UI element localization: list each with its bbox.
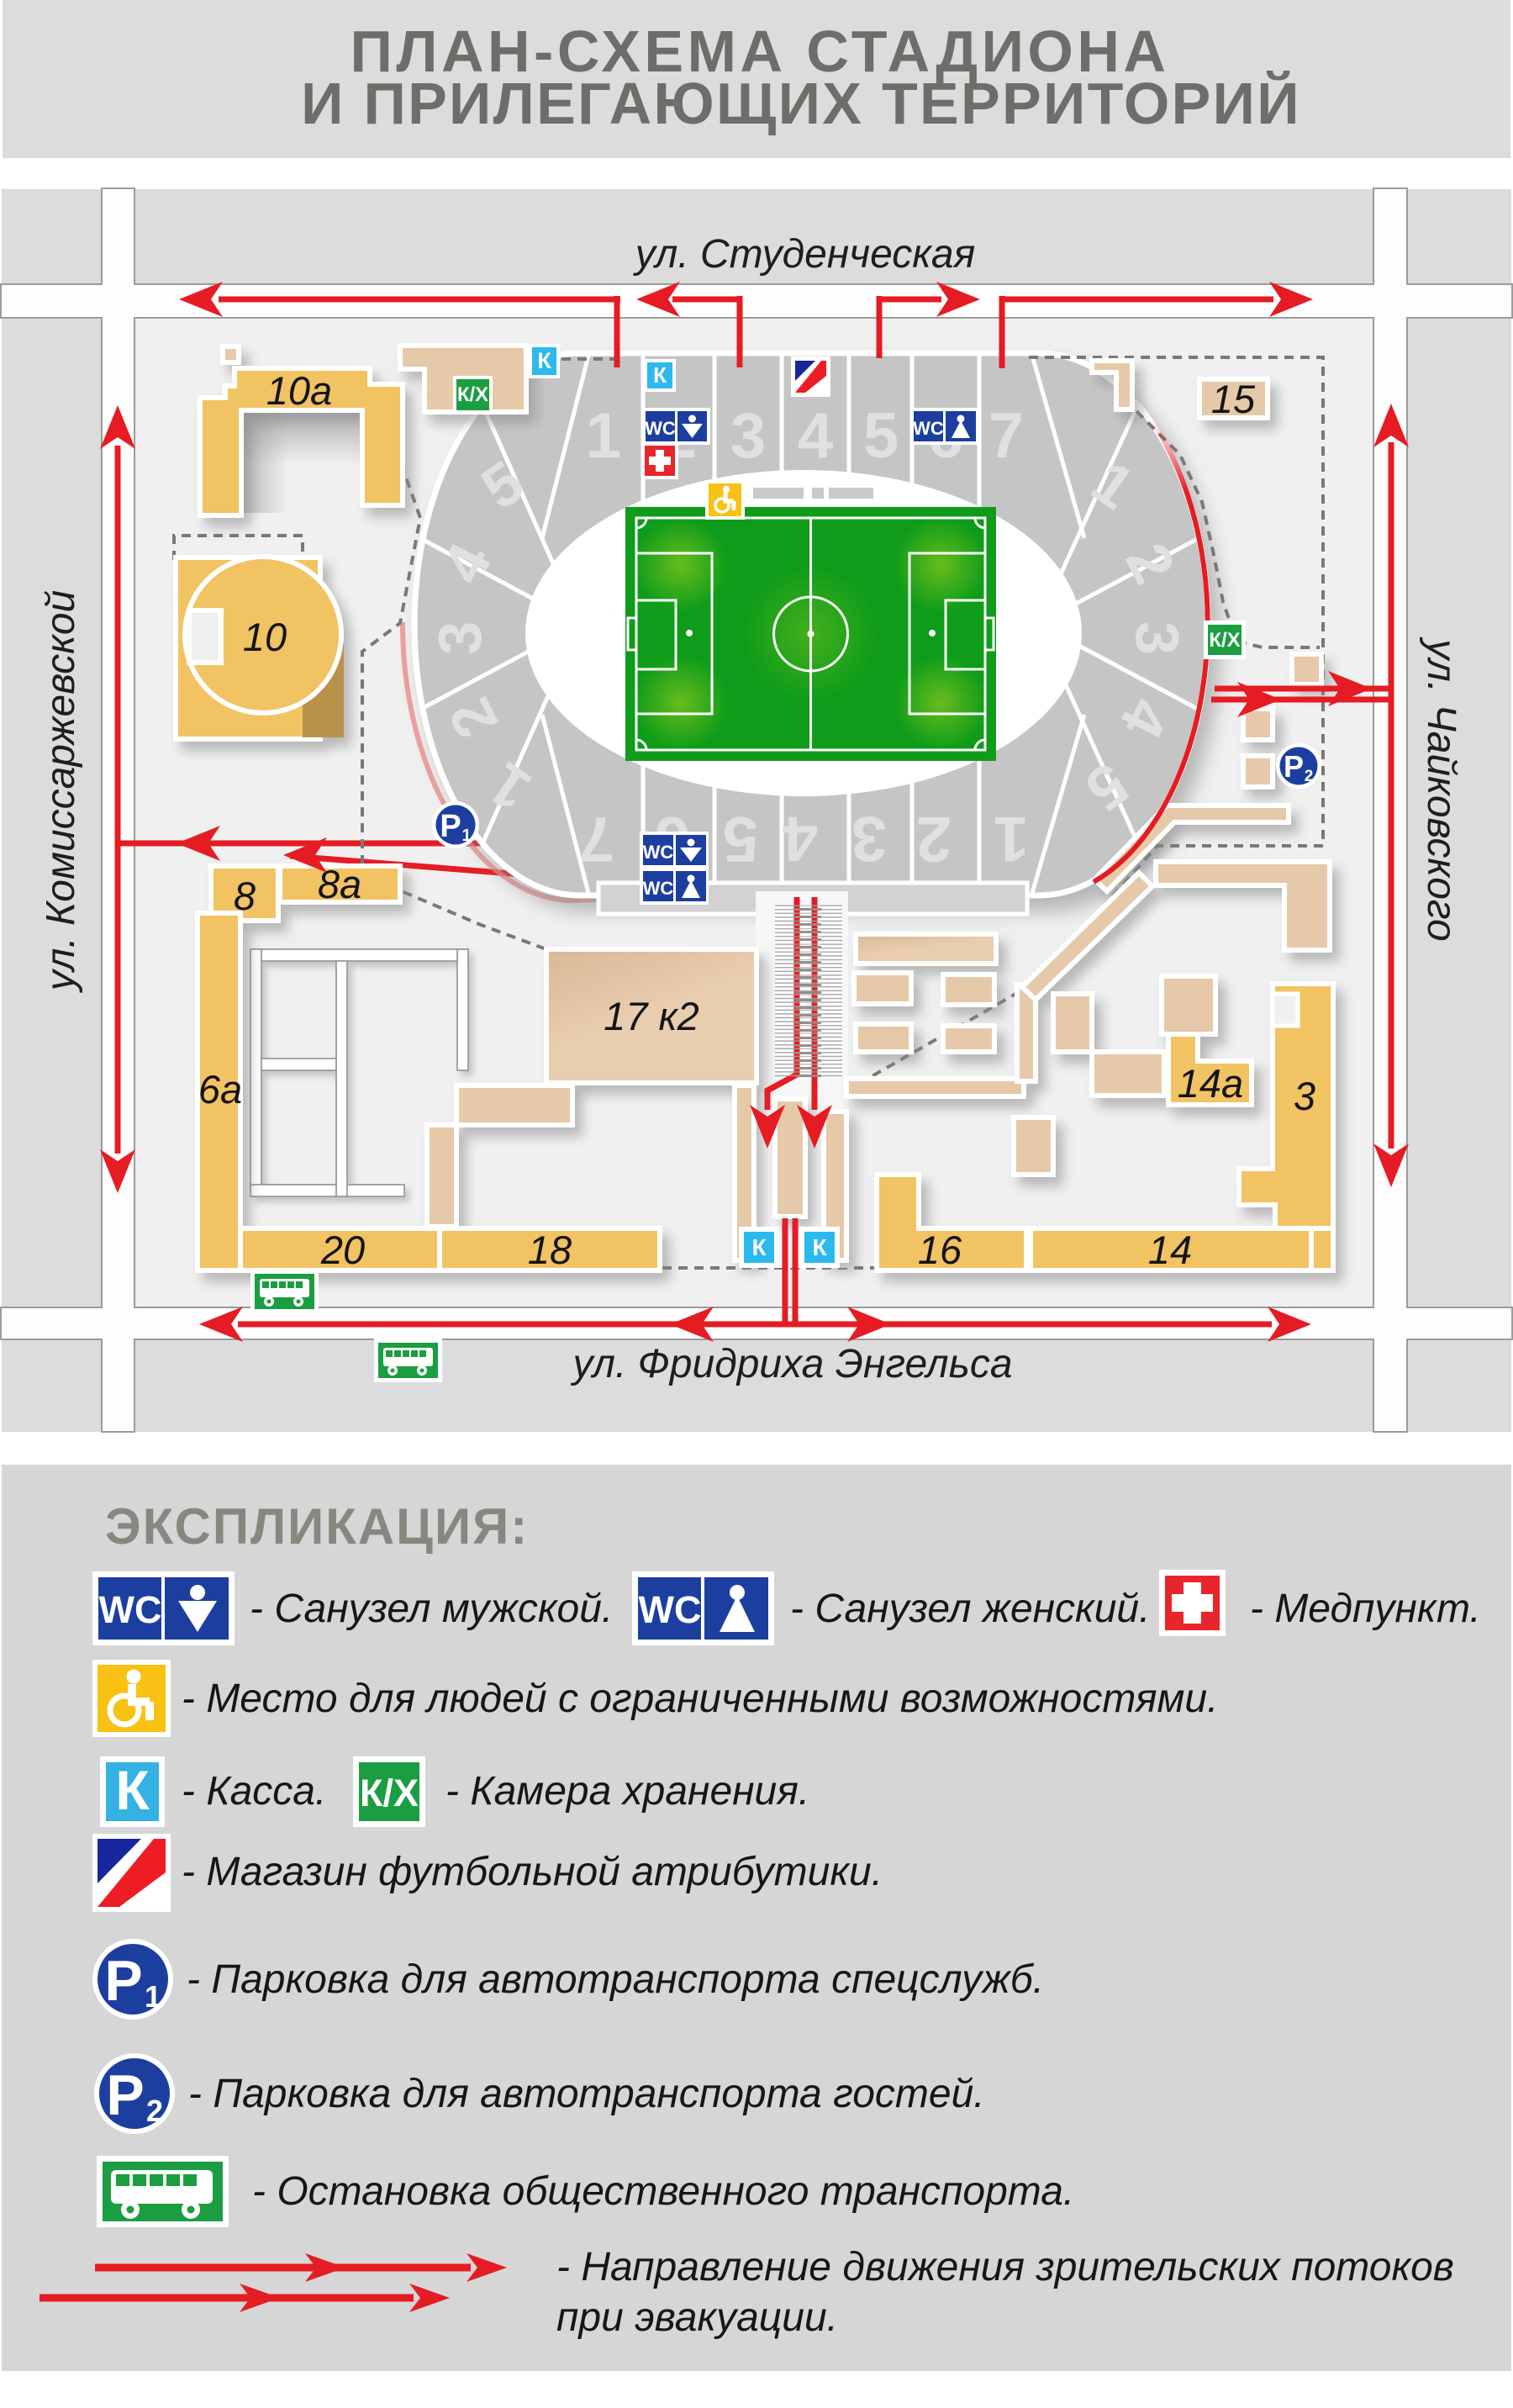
svg-text:- Направление движения зритель: - Направление движения зрительских поток… <box>556 2245 1454 2289</box>
svg-text:ул. Студенческая: ул. Студенческая <box>633 232 975 277</box>
svg-text:- Парковка для автотранспорта: - Парковка для автотранспорта спецслужб. <box>187 1957 1044 2002</box>
svg-text:Р: Р <box>106 2063 144 2127</box>
svg-text:К/Х: К/Х <box>360 1772 419 1814</box>
svg-text:8а: 8а <box>318 862 361 906</box>
svg-text:К/Х: К/Х <box>1209 629 1240 652</box>
svg-text:WC: WC <box>99 1588 162 1631</box>
svg-text:- Медпункт.: - Медпункт. <box>1250 1587 1481 1631</box>
svg-text:10а: 10а <box>266 368 332 413</box>
svg-text:WC: WC <box>645 418 676 439</box>
svg-text:3: 3 <box>851 803 887 874</box>
svg-text:2: 2 <box>1305 768 1314 785</box>
svg-text:при эвакуации.: при эвакуации. <box>556 2295 838 2340</box>
svg-text:ЭКСПЛИКАЦИЯ:: ЭКСПЛИКАЦИЯ: <box>105 1498 529 1555</box>
svg-text:8: 8 <box>234 874 256 918</box>
svg-text:1: 1 <box>145 1979 161 2014</box>
svg-text:Р: Р <box>440 809 461 844</box>
svg-text:- Магазин футбольной атрибутик: - Магазин футбольной атрибутики. <box>182 1850 883 1894</box>
svg-text:- Место для людей с ограниченн: - Место для людей с ограниченными возмож… <box>182 1677 1218 1721</box>
svg-text:К: К <box>115 1759 150 1821</box>
svg-text:3: 3 <box>1123 621 1190 655</box>
svg-text:К/Х: К/Х <box>457 383 488 406</box>
svg-text:1: 1 <box>586 400 621 472</box>
svg-text:К: К <box>653 362 667 388</box>
svg-text:14а: 14а <box>1178 1061 1243 1106</box>
svg-text:7: 7 <box>579 803 614 874</box>
svg-text:6а: 6а <box>198 1067 242 1112</box>
svg-text:7: 7 <box>988 400 1024 472</box>
svg-text:2: 2 <box>146 2094 163 2128</box>
svg-text:17 к2: 17 к2 <box>604 994 699 1038</box>
svg-text:И ПРИЛЕГАЮЩИХ ТЕРРИТОРИЙ: И ПРИЛЕГАЮЩИХ ТЕРРИТОРИЙ <box>301 70 1301 136</box>
svg-text:3: 3 <box>427 621 494 655</box>
svg-text:- Парковка для автотранспорта: - Парковка для автотранспорта гостей. <box>188 2072 985 2116</box>
svg-text:- Санузел мужской.: - Санузел мужской. <box>250 1587 613 1631</box>
svg-text:- Камера хранения.: - Камера хранения. <box>445 1769 809 1814</box>
svg-text:К: К <box>751 1234 767 1260</box>
svg-text:18: 18 <box>528 1228 572 1272</box>
svg-text:ул. Фридриха Энгельса: ул. Фридриха Энгельса <box>570 1342 1012 1386</box>
svg-text:5: 5 <box>863 400 899 472</box>
svg-text:WC: WC <box>639 1588 702 1631</box>
svg-text:ул. Чайковского: ул. Чайковского <box>1419 636 1463 941</box>
svg-text:Р: Р <box>1284 749 1304 784</box>
svg-text:К: К <box>537 348 551 373</box>
svg-text:5: 5 <box>723 803 758 874</box>
svg-text:ул. Комиссаржевской: ул. Комиссаржевской <box>39 590 83 993</box>
svg-text:WC: WC <box>643 878 674 899</box>
svg-text:- Касса.: - Касса. <box>182 1769 326 1814</box>
svg-text:Р: Р <box>104 1949 142 2013</box>
svg-text:К: К <box>812 1234 827 1260</box>
svg-text:WC: WC <box>913 418 944 439</box>
svg-text:1: 1 <box>994 803 1029 874</box>
svg-text:3: 3 <box>1294 1074 1315 1118</box>
svg-text:- Санузел женский.: - Санузел женский. <box>790 1587 1150 1631</box>
svg-text:20: 20 <box>320 1228 365 1272</box>
svg-text:4: 4 <box>783 803 818 874</box>
svg-text:- Остановка общественного тран: - Остановка общественного транспорта. <box>252 2169 1074 2214</box>
svg-text:2: 2 <box>916 803 952 874</box>
svg-text:WC: WC <box>643 842 674 863</box>
svg-text:14: 14 <box>1148 1228 1192 1272</box>
svg-text:1: 1 <box>461 826 471 845</box>
svg-text:16: 16 <box>918 1228 962 1272</box>
svg-text:10: 10 <box>243 615 287 659</box>
svg-text:4: 4 <box>798 400 833 472</box>
svg-text:15: 15 <box>1211 377 1256 421</box>
svg-text:3: 3 <box>730 400 766 472</box>
